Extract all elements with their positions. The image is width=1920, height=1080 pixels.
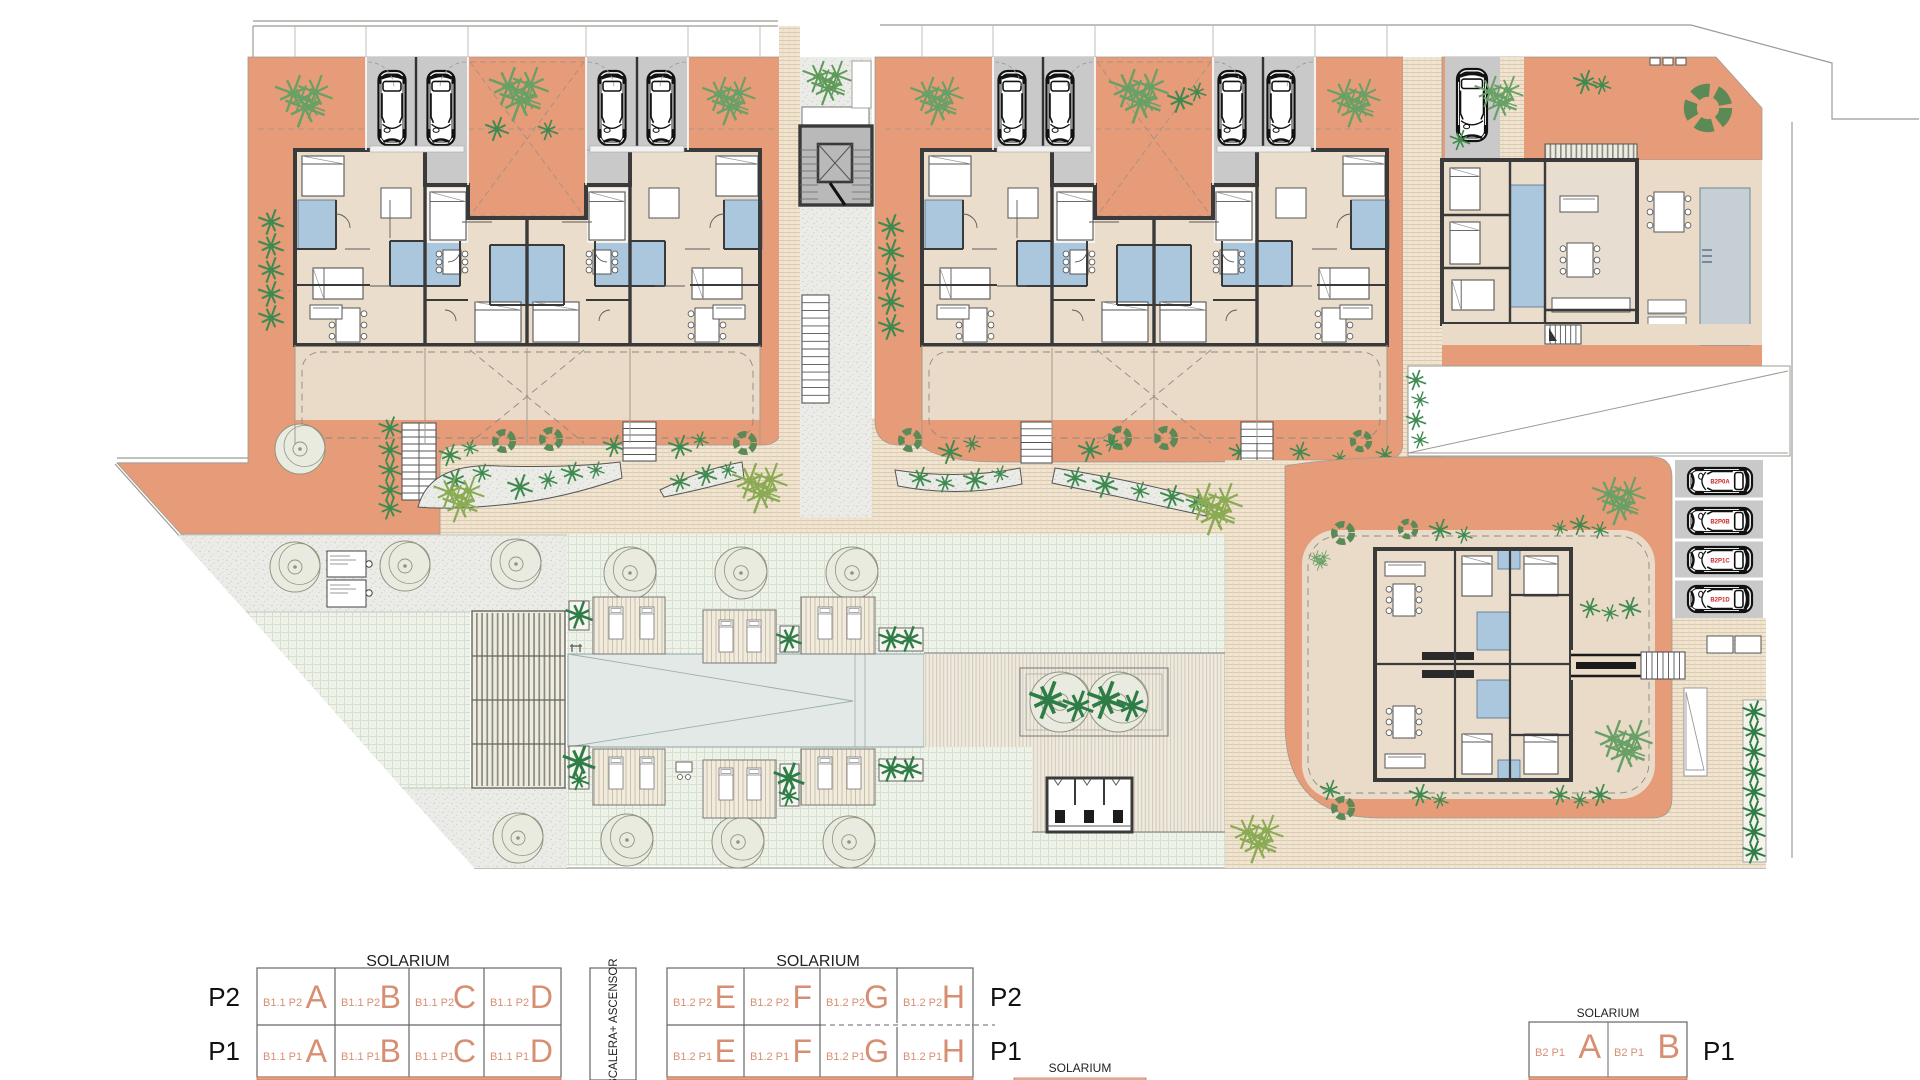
- svg-text:C: C: [453, 979, 476, 1015]
- svg-text:B1.1 P2: B1.1 P2: [415, 997, 454, 1009]
- svg-text:B2P0A: B2P0A: [1710, 480, 1730, 486]
- svg-text:B: B: [1657, 1028, 1680, 1066]
- svg-text:B1.2 P2: B1.2 P2: [903, 997, 942, 1009]
- svg-text:B1.2 P2: B1.2 P2: [826, 997, 865, 1009]
- svg-text:H: H: [942, 1033, 965, 1069]
- svg-text:B1.2 P1: B1.2 P1: [826, 1051, 865, 1063]
- svg-text:B1.2 P1: B1.2 P1: [673, 1051, 712, 1063]
- svg-text:E: E: [715, 979, 736, 1015]
- svg-text:B1.1 P1: B1.1 P1: [263, 1051, 302, 1063]
- svg-text:A: A: [1578, 1028, 1601, 1066]
- svg-text:SOLARIUM: SOLARIUM: [1049, 1061, 1112, 1075]
- svg-text:D: D: [530, 1033, 553, 1069]
- svg-text:B2P0B: B2P0B: [1710, 520, 1730, 526]
- svg-text:F: F: [792, 1033, 812, 1069]
- svg-text:P1: P1: [990, 1036, 1022, 1066]
- svg-text:B1.2 P1: B1.2 P1: [750, 1051, 789, 1063]
- svg-text:C: C: [453, 1033, 476, 1069]
- svg-text:B1.1 P1: B1.1 P1: [415, 1051, 454, 1063]
- svg-text:B1.2 P2: B1.2 P2: [750, 997, 789, 1009]
- svg-text:B2P1C: B2P1C: [1710, 559, 1730, 565]
- svg-text:A: A: [306, 979, 328, 1015]
- svg-text:B: B: [380, 1033, 401, 1069]
- svg-text:E: E: [715, 1033, 736, 1069]
- svg-text:H: H: [942, 979, 965, 1015]
- svg-text:P2: P2: [208, 982, 240, 1012]
- svg-text:B1.2 P1: B1.2 P1: [903, 1051, 942, 1063]
- svg-text:B1.1 P2: B1.1 P2: [263, 997, 302, 1009]
- svg-text:P1: P1: [208, 1036, 240, 1066]
- svg-text:P1: P1: [1703, 1036, 1735, 1066]
- svg-text:A: A: [306, 1033, 328, 1069]
- svg-text:SOLARIUM: SOLARIUM: [1577, 1006, 1640, 1020]
- svg-text:G: G: [864, 979, 889, 1015]
- svg-text:B1.2 P2: B1.2 P2: [673, 997, 712, 1009]
- svg-text:B2 P1: B2 P1: [1614, 1047, 1644, 1059]
- svg-text:B1.1 P2: B1.1 P2: [341, 997, 380, 1009]
- svg-text:B1.1 P1: B1.1 P1: [490, 1051, 529, 1063]
- svg-text:D: D: [530, 979, 553, 1015]
- svg-text:F: F: [792, 979, 812, 1015]
- svg-text:P2: P2: [990, 982, 1022, 1012]
- svg-text:B: B: [380, 979, 401, 1015]
- svg-text:B2 P1: B2 P1: [1535, 1047, 1565, 1059]
- svg-text:ESCALERA+ ASCENSOR: ESCALERA+ ASCENSOR: [608, 958, 620, 1080]
- svg-text:B1.1 P2: B1.1 P2: [490, 997, 529, 1009]
- svg-text:B2P1D: B2P1D: [1710, 598, 1730, 604]
- svg-text:G: G: [864, 1033, 889, 1069]
- svg-text:B1.1 P1: B1.1 P1: [341, 1051, 380, 1063]
